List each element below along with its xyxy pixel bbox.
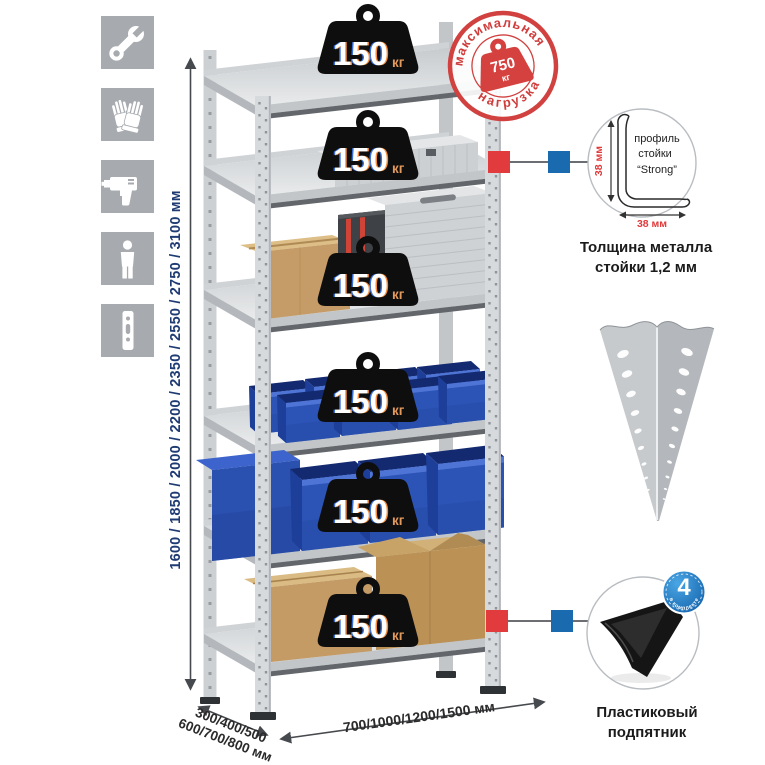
svg-text:150: 150 bbox=[333, 35, 388, 72]
callout-marker-red-bottom bbox=[486, 610, 508, 632]
svg-text:150: 150 bbox=[333, 383, 388, 420]
badge-number: 4 bbox=[677, 574, 691, 601]
profile-label-1: профиль bbox=[634, 133, 680, 145]
svg-text:кг: кг bbox=[392, 287, 405, 302]
max-load-stamp: максимальная нагрузка 750 кг bbox=[439, 2, 567, 130]
weight-unit: кг bbox=[392, 55, 405, 70]
profile-caption: Толщина металла стойки 1,2 мм bbox=[580, 238, 712, 277]
svg-text:кг: кг bbox=[392, 161, 405, 176]
foot-caption: Пластиковый подпятник bbox=[596, 703, 697, 742]
profile-detail-circle: 38 мм 38 мм профиль стойки “Strong” bbox=[588, 109, 696, 230]
rack-scene: 150 150 150 кг 150 150 150 кг 150 150 15… bbox=[0, 0, 765, 765]
svg-text:150: 150 bbox=[333, 608, 388, 645]
product-infographic: 150 150 150 кг 150 150 150 кг 150 150 15… bbox=[0, 0, 765, 765]
included-count-badge: 4 в комплекте bbox=[663, 571, 706, 614]
corner-post-image bbox=[600, 322, 714, 521]
weight-icon: 150 150 150 кг bbox=[318, 8, 419, 75]
profile-label-3: “Strong” bbox=[637, 164, 677, 176]
svg-text:150: 150 bbox=[333, 493, 388, 530]
weight-icon: 150 150 150 кг bbox=[318, 356, 419, 423]
svg-text:кг: кг bbox=[392, 628, 405, 643]
svg-text:150: 150 bbox=[333, 267, 388, 304]
callout-marker-red-top bbox=[488, 151, 510, 173]
svg-text:кг: кг bbox=[392, 403, 405, 418]
profile-dim-height: 38 мм bbox=[593, 146, 605, 176]
profile-dim-width: 38 мм bbox=[637, 218, 667, 230]
foot-detail-circle: 4 в комплекте bbox=[587, 571, 706, 690]
callout-marker-blue-top bbox=[548, 151, 570, 173]
profile-label-2: стойки bbox=[638, 148, 672, 160]
weight-icon: 150 150 150 кг bbox=[318, 114, 419, 181]
callout-connectors bbox=[486, 151, 589, 632]
svg-text:150: 150 bbox=[333, 141, 388, 178]
callout-marker-blue-bottom bbox=[551, 610, 573, 632]
svg-text:кг: кг bbox=[392, 513, 405, 528]
height-dimension-label: 1600 / 1850 / 2000 / 2200 / 2350 / 2550 … bbox=[168, 190, 184, 569]
